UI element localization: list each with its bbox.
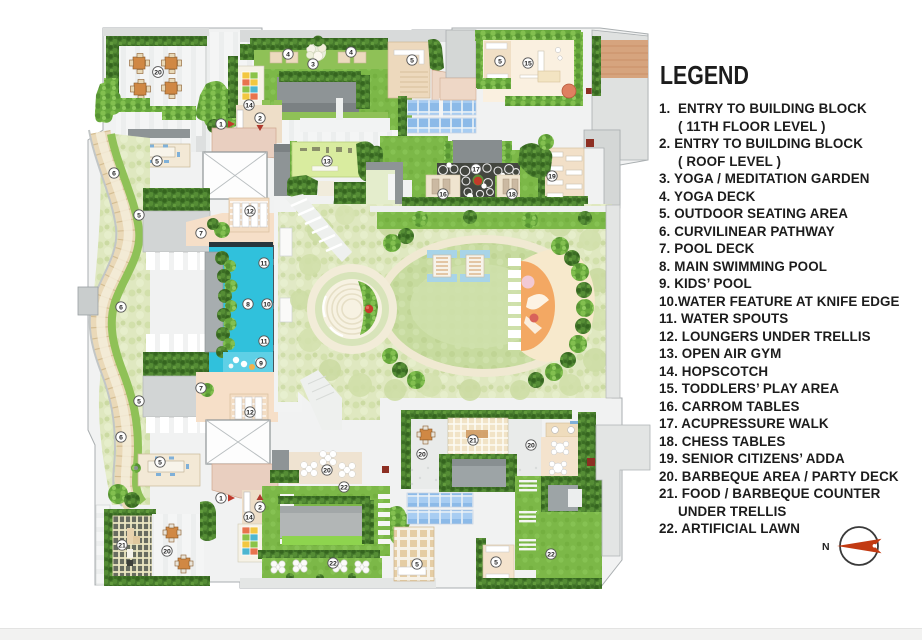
svg-text:18: 18 [508, 191, 516, 198]
svg-text:10: 10 [263, 301, 271, 308]
svg-text:22: 22 [340, 484, 348, 491]
svg-text:14: 14 [245, 102, 253, 109]
svg-text:6: 6 [112, 170, 116, 177]
svg-text:9: 9 [259, 360, 263, 367]
svg-text:21: 21 [469, 437, 477, 444]
svg-text:20: 20 [154, 69, 162, 76]
svg-text:5: 5 [137, 398, 141, 405]
svg-text:5: 5 [498, 58, 502, 65]
svg-text:5: 5 [415, 561, 419, 568]
svg-text:2: 2 [258, 115, 262, 122]
svg-text:11: 11 [260, 338, 267, 345]
svg-text:7: 7 [199, 230, 203, 237]
svg-text:20: 20 [163, 548, 171, 555]
svg-text:12: 12 [246, 208, 254, 215]
svg-text:12: 12 [246, 409, 254, 416]
svg-text:16: 16 [439, 191, 447, 198]
svg-text:21: 21 [118, 542, 126, 549]
svg-text:5: 5 [158, 459, 162, 466]
svg-text:3: 3 [311, 61, 315, 68]
svg-text:14: 14 [245, 514, 253, 521]
svg-text:5: 5 [155, 158, 159, 165]
svg-text:N: N [822, 541, 830, 553]
svg-text:20: 20 [323, 467, 331, 474]
svg-text:4: 4 [349, 49, 353, 56]
svg-text:6: 6 [119, 434, 123, 441]
svg-text:4: 4 [286, 51, 290, 58]
svg-text:13: 13 [323, 158, 331, 165]
svg-text:5: 5 [410, 57, 414, 64]
svg-text:1: 1 [219, 495, 223, 502]
svg-text:5: 5 [494, 559, 498, 566]
svg-text:8: 8 [246, 301, 250, 308]
svg-text:20: 20 [527, 442, 535, 449]
svg-text:7: 7 [199, 385, 203, 392]
svg-text:1: 1 [219, 121, 223, 128]
svg-text:15: 15 [524, 60, 532, 67]
svg-text:19: 19 [548, 173, 556, 180]
svg-text:20: 20 [418, 451, 426, 458]
svg-text:5: 5 [137, 212, 141, 219]
svg-text:2: 2 [258, 504, 262, 511]
svg-text:6: 6 [119, 304, 123, 311]
svg-text:22: 22 [547, 551, 555, 558]
svg-text:22: 22 [329, 560, 337, 567]
svg-text:11: 11 [260, 260, 267, 267]
svg-text:17: 17 [472, 166, 480, 173]
